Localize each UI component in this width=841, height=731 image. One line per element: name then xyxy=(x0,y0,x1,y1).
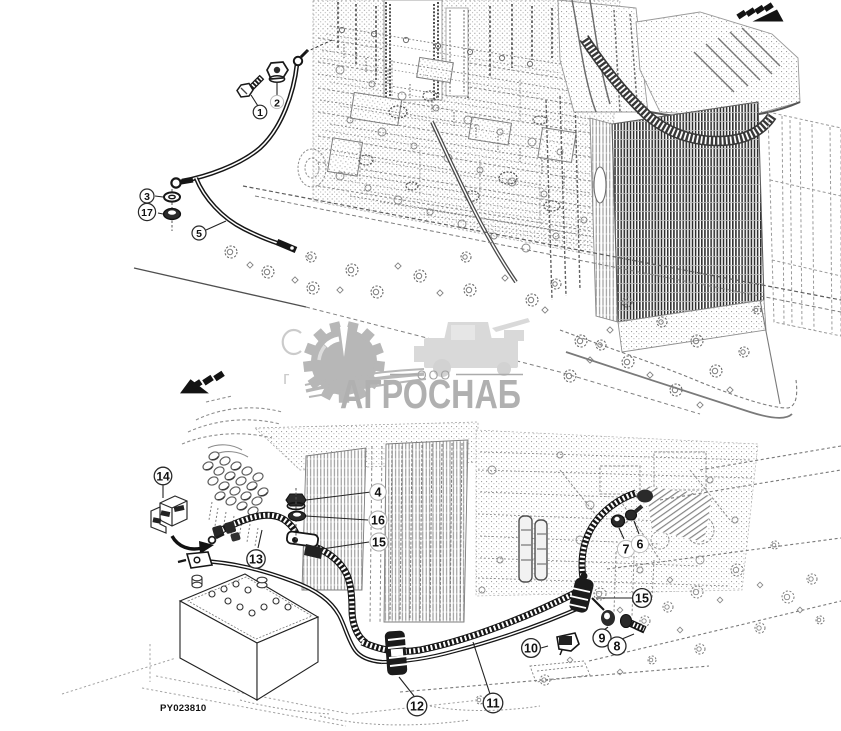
svg-text:АГРОСНАБ: АГРОСНАБ xyxy=(340,371,521,417)
svg-text:6: 6 xyxy=(637,538,644,552)
svg-text:5: 5 xyxy=(196,228,202,240)
svg-text:17: 17 xyxy=(141,207,153,219)
svg-text:8: 8 xyxy=(614,640,621,654)
svg-text:14: 14 xyxy=(156,470,170,484)
svg-text:11: 11 xyxy=(486,697,499,711)
svg-text:1: 1 xyxy=(257,107,263,119)
svg-text:15: 15 xyxy=(635,592,649,606)
svg-text:2: 2 xyxy=(274,98,280,110)
svg-text:13: 13 xyxy=(249,553,263,567)
svg-text:9: 9 xyxy=(599,632,606,646)
svg-text:10: 10 xyxy=(524,642,538,656)
svg-text:7: 7 xyxy=(623,543,630,557)
svg-text:г: г xyxy=(283,368,290,388)
svg-text:16: 16 xyxy=(371,514,385,528)
svg-text:PY023810: PY023810 xyxy=(160,703,206,714)
svg-text:15: 15 xyxy=(372,536,386,550)
svg-text:12: 12 xyxy=(410,700,424,714)
svg-text:3: 3 xyxy=(144,191,150,203)
svg-text:4: 4 xyxy=(375,486,382,500)
